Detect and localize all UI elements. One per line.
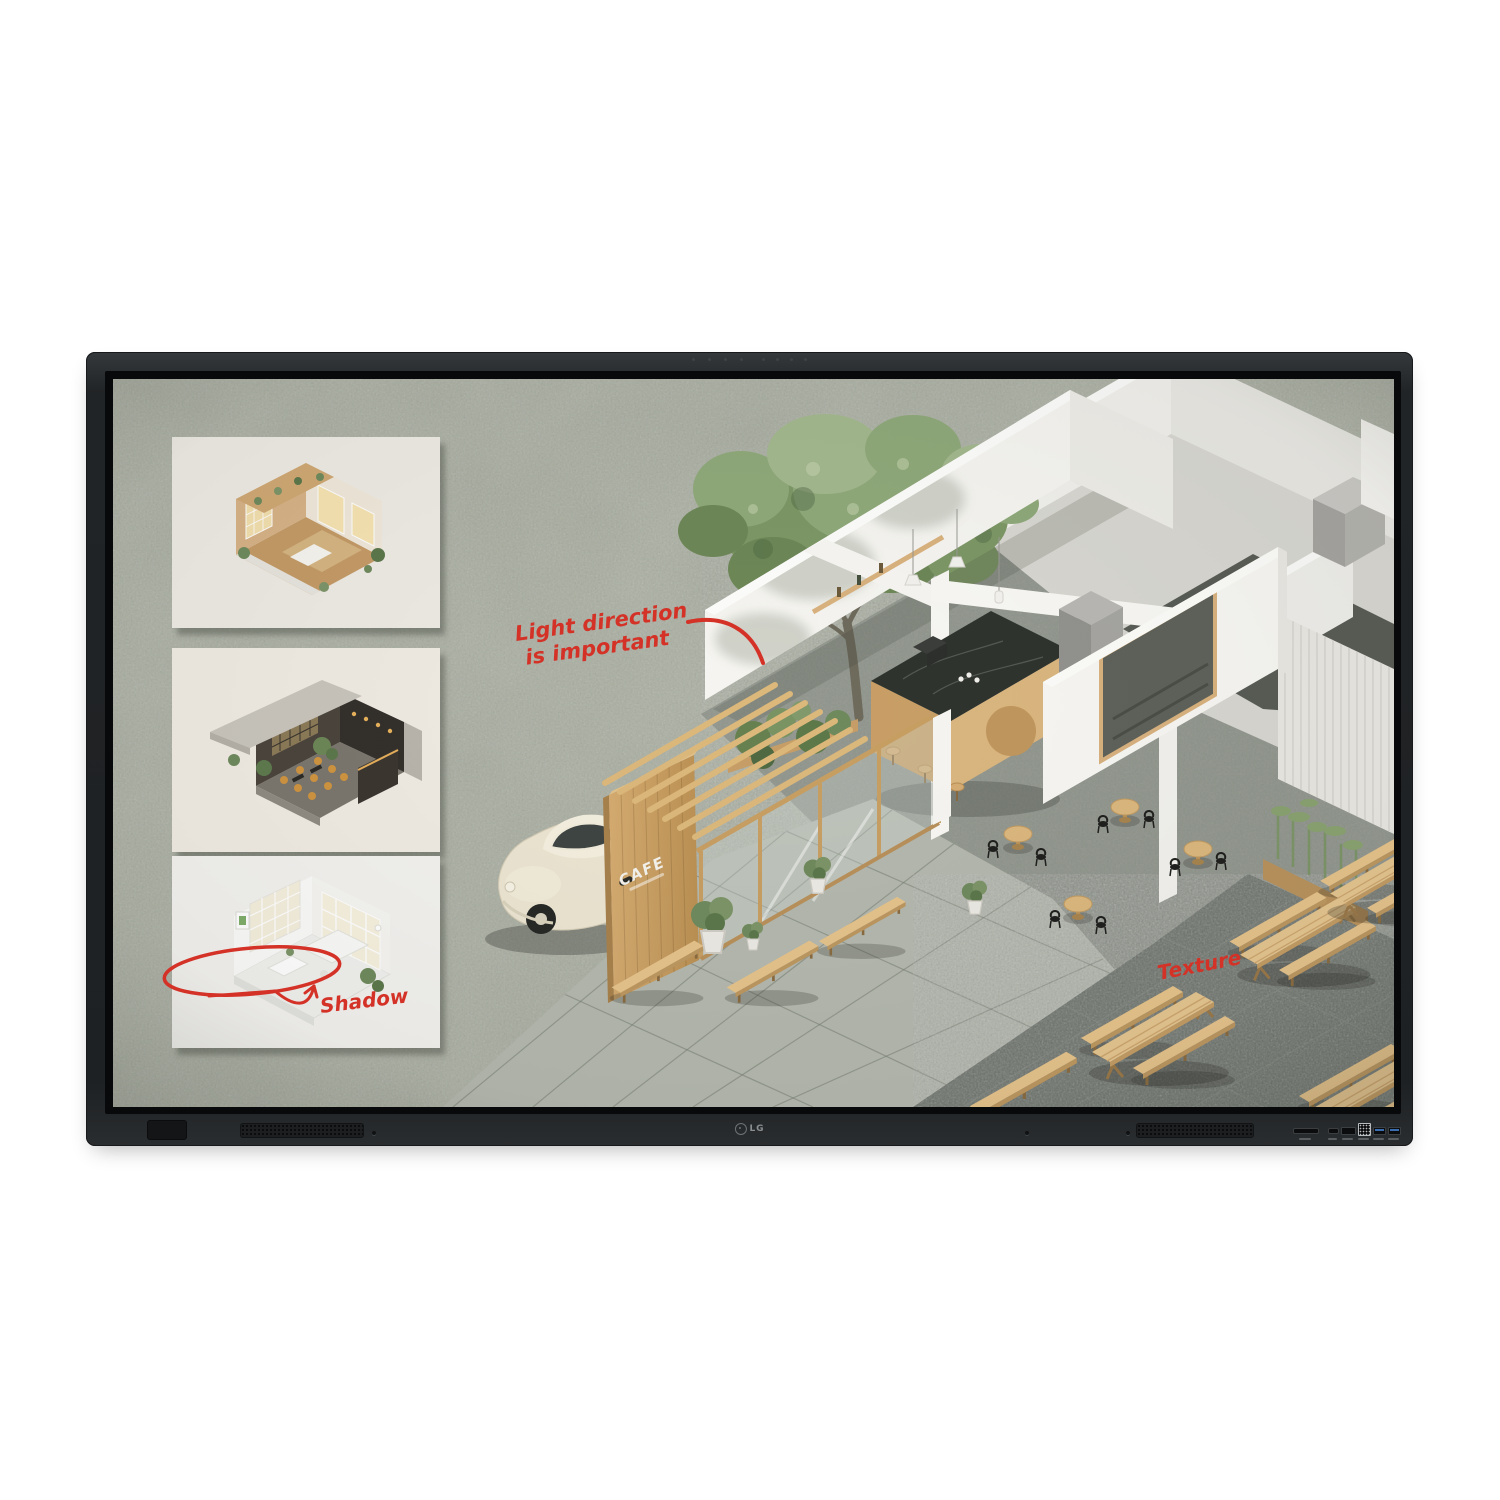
lg-logo-text: LG — [749, 1124, 764, 1134]
bezel-screw — [1126, 1131, 1130, 1135]
screen-vignette — [113, 379, 1394, 1107]
screen: CAFE — [113, 379, 1394, 1107]
power-slot — [1293, 1128, 1319, 1134]
ir-sensor-window — [148, 1121, 186, 1139]
usb-c-port — [1328, 1128, 1339, 1134]
lg-logo: LG — [734, 1123, 764, 1135]
speaker-grille-left — [241, 1124, 363, 1137]
touch-out-port — [1358, 1123, 1371, 1136]
bezel-screw — [1025, 1131, 1029, 1135]
usb-port-1 — [1373, 1127, 1386, 1135]
hdmi-port — [1341, 1127, 1356, 1135]
port-cluster — [1291, 1120, 1403, 1142]
usb-port-2 — [1388, 1127, 1401, 1135]
lg-emblem-icon — [734, 1123, 746, 1135]
whiteboard-scene: CAFE — [113, 379, 1394, 1107]
display-monitor: CAFE — [86, 352, 1413, 1146]
speaker-grille-right — [1137, 1124, 1253, 1137]
bezel-screw — [372, 1131, 376, 1135]
